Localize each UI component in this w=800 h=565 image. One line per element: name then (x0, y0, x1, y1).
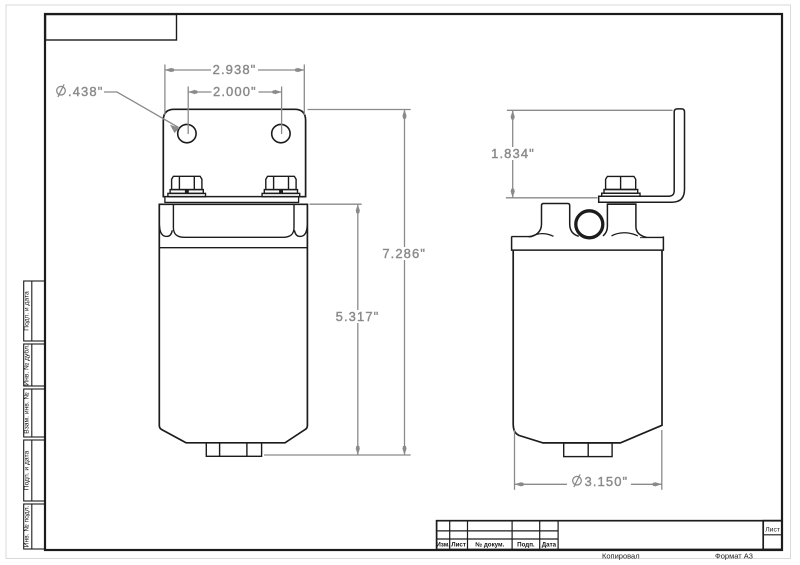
svg-text:Инв. № дубл.: Инв. № дубл. (23, 344, 31, 386)
svg-text:Лист: Лист (451, 541, 466, 548)
svg-text:Формат А3: Формат А3 (715, 552, 753, 561)
svg-text:Взам. инв. №: Взам. инв. № (24, 392, 31, 433)
svg-text:Дата: Дата (542, 541, 557, 548)
svg-text:1.834": 1.834" (491, 146, 535, 161)
svg-text:Подп. и дата: Подп. и дата (24, 451, 31, 491)
svg-text:Копировал: Копировал (602, 552, 640, 561)
svg-text:5.317": 5.317" (336, 309, 380, 324)
svg-text:Подп.: Подп. (517, 541, 535, 548)
svg-text:2.938": 2.938" (213, 62, 257, 77)
svg-text:Изм.: Изм. (436, 541, 450, 548)
svg-text:№ докум.: № докум. (475, 541, 504, 548)
svg-text:3.150": 3.150" (585, 474, 629, 489)
svg-text:7.286": 7.286" (382, 246, 426, 261)
svg-text:.438": .438" (68, 84, 103, 99)
svg-text:Инв. № подл.: Инв. № подл. (24, 506, 31, 548)
svg-text:Лист: Лист (765, 527, 780, 534)
svg-text:Подп. и дата: Подп. и дата (24, 291, 31, 331)
svg-text:2.000": 2.000" (213, 84, 257, 99)
